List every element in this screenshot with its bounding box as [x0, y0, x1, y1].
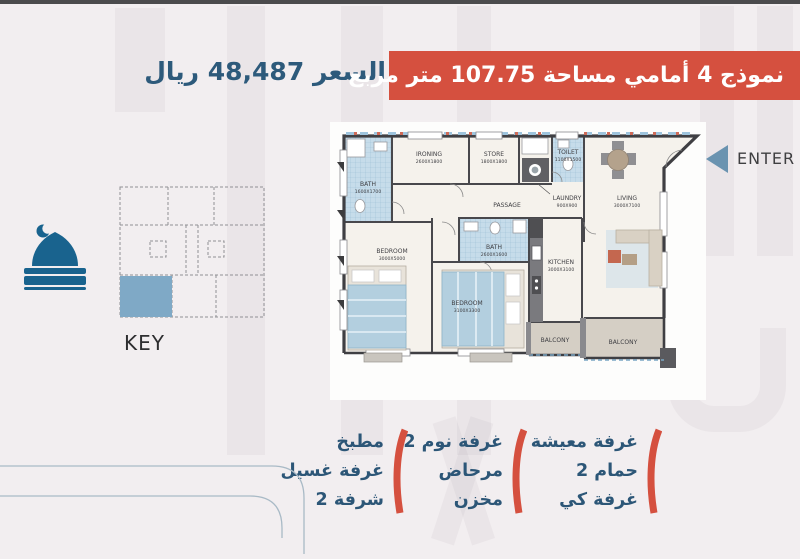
- mosque-icon: [24, 222, 86, 290]
- room-dims: 2600X1800: [416, 159, 443, 165]
- room-label: PASSAGE: [493, 202, 521, 209]
- room-label: KITCHEN: [548, 259, 574, 266]
- red-bracket-icon: [646, 428, 662, 515]
- enter-label: ENTER: [737, 149, 795, 168]
- room-label: BATH: [486, 244, 502, 251]
- enter-arrow-icon: [704, 144, 730, 174]
- room-dims: 1800X1800: [481, 159, 508, 165]
- watermark-bar: [757, 6, 793, 256]
- room-dims: 1100X1500: [555, 157, 582, 163]
- red-bracket-icon: [392, 428, 408, 515]
- room-label: BALCONY: [541, 337, 570, 344]
- top-bar: [0, 0, 800, 4]
- key-label: KEY: [124, 331, 165, 355]
- room-label: TOILET: [557, 149, 579, 156]
- room-dims: 1600X1700: [355, 189, 382, 195]
- room-dims: 3100X3300: [454, 308, 481, 314]
- red-bracket-icon: [511, 428, 527, 515]
- room-label: LIVING: [617, 195, 637, 202]
- room-label: LAUNDRY: [553, 195, 582, 202]
- room-dims: 3000X3100: [548, 267, 575, 273]
- key-unit-highlight: [120, 276, 172, 317]
- key-plan: [116, 183, 268, 335]
- decor-curves: [0, 450, 340, 559]
- room-label: BALCONY: [609, 339, 638, 346]
- floor-plan: BATH 1600X1700 IRONING 2600X1800 STORE 1…: [330, 122, 706, 400]
- room-dims: 3000X5000: [379, 256, 406, 262]
- room-label: BATH: [360, 181, 376, 188]
- room-dims: 2600X1600: [481, 252, 508, 258]
- room-label: BEDROOM: [376, 248, 407, 255]
- room-dims: 3000X7100: [614, 203, 641, 209]
- flyer-page: السعر 48,487 ريال نموذج 4 أمامي مساحة 10…: [0, 0, 800, 559]
- room-dims: 900X900: [557, 203, 578, 209]
- room-label: IRONING: [416, 151, 442, 158]
- title-banner: نموذج 4 أمامي مساحة 107.75 متر مربع: [389, 51, 800, 100]
- room-label: BEDROOM: [451, 300, 482, 307]
- room-label: STORE: [484, 151, 504, 158]
